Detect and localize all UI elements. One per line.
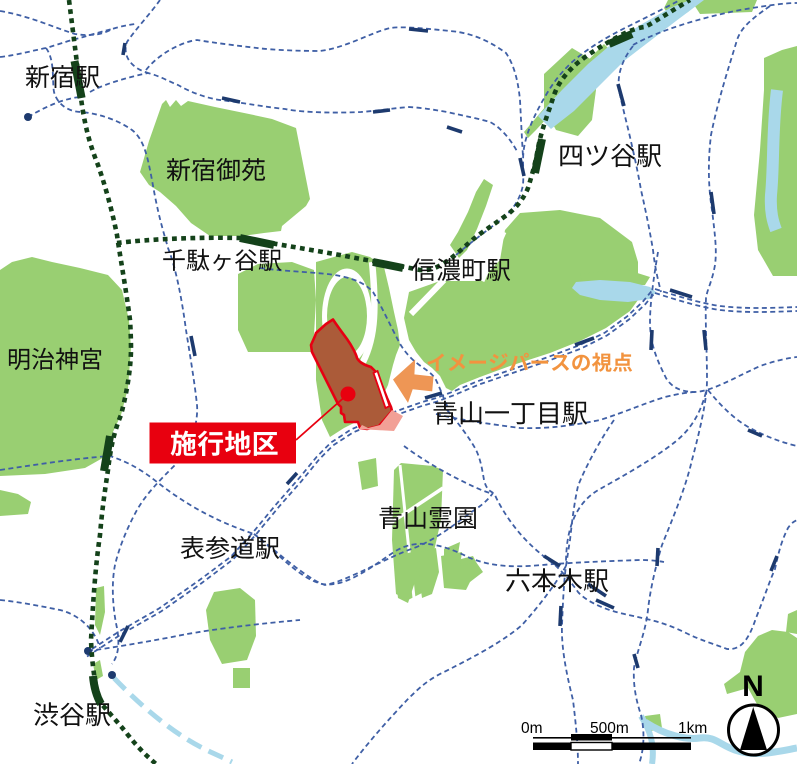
svg-text:1km: 1km <box>678 720 707 737</box>
svg-text:0m: 0m <box>521 720 543 737</box>
svg-text:N: N <box>742 670 764 703</box>
